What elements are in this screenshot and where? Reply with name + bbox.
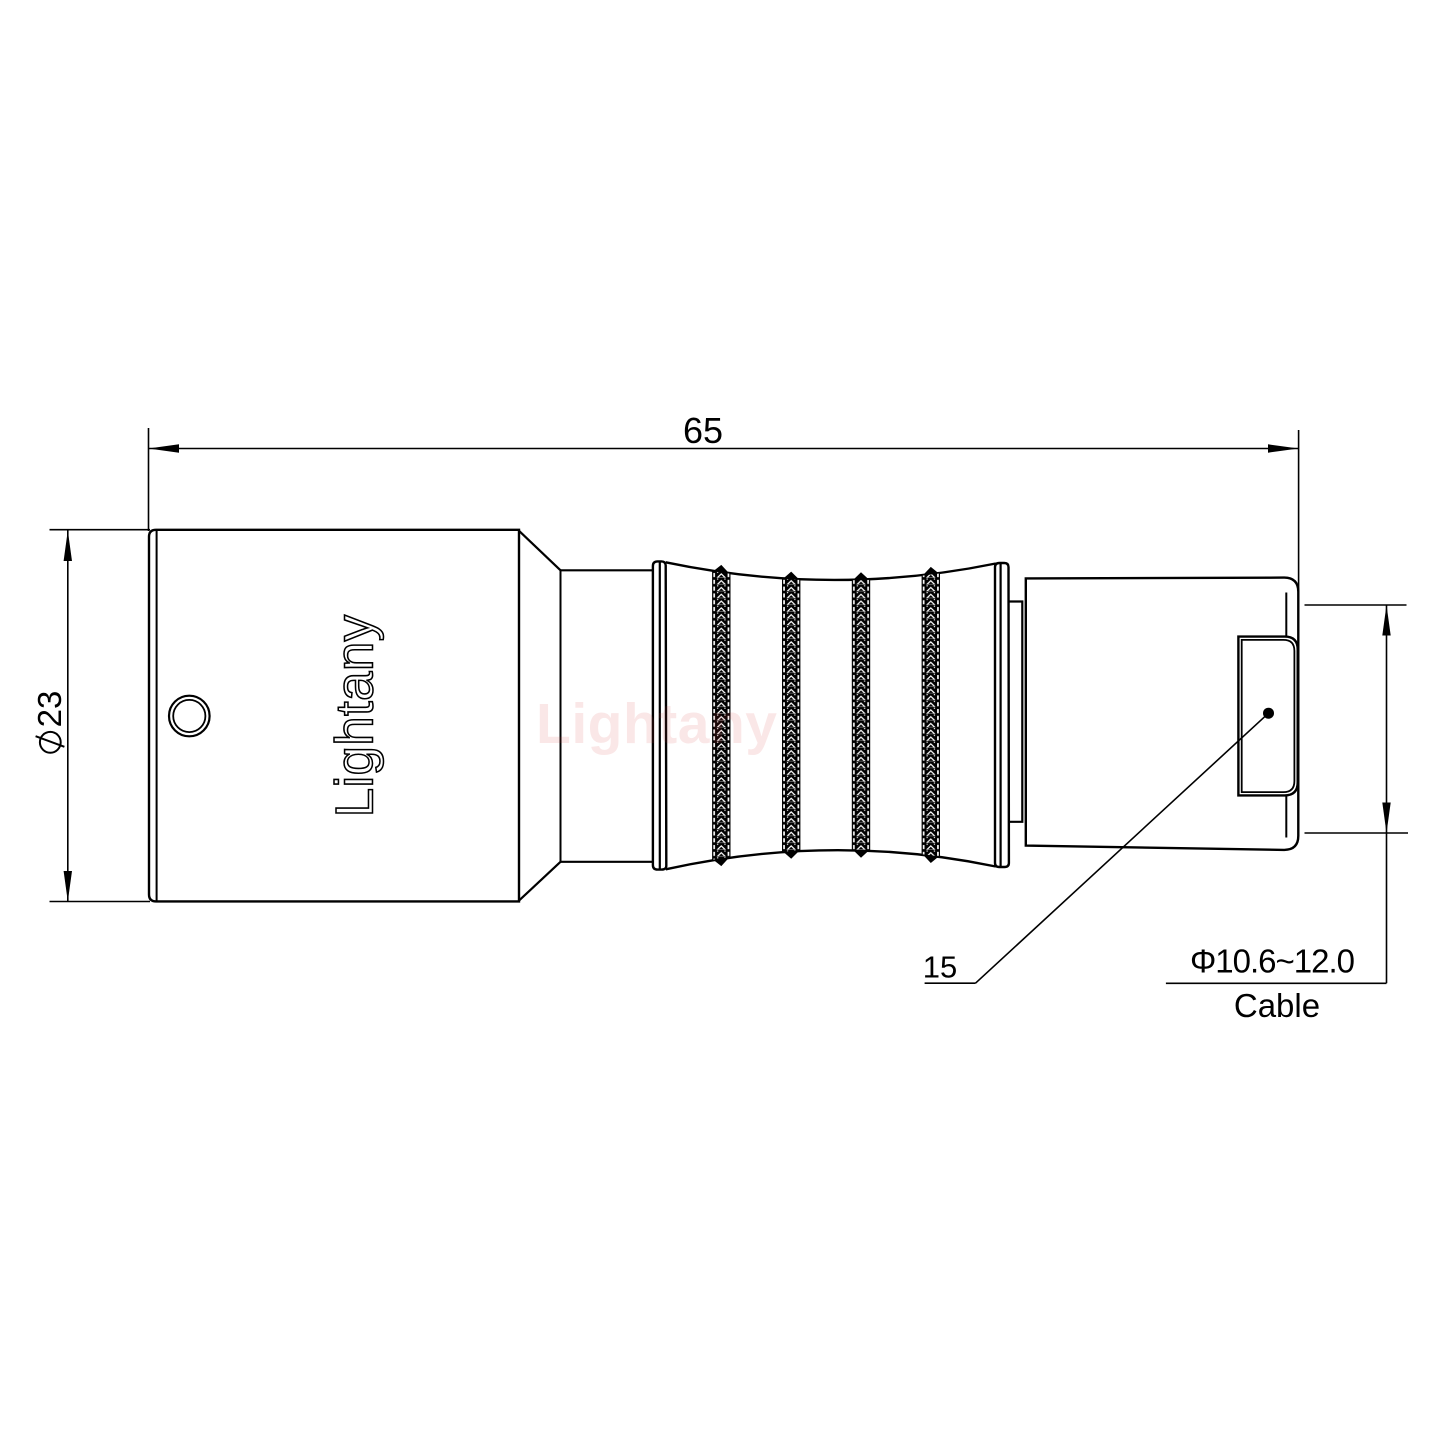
svg-text:65: 65	[683, 410, 723, 451]
svg-text:Lightany: Lightany	[536, 692, 778, 756]
svg-text:Lightany: Lightany	[326, 614, 385, 817]
svg-text:23: 23	[31, 691, 68, 728]
svg-text:15: 15	[923, 949, 957, 984]
svg-text:Φ10.6~12.0: Φ10.6~12.0	[1190, 943, 1355, 980]
svg-text:Cable: Cable	[1234, 987, 1320, 1024]
